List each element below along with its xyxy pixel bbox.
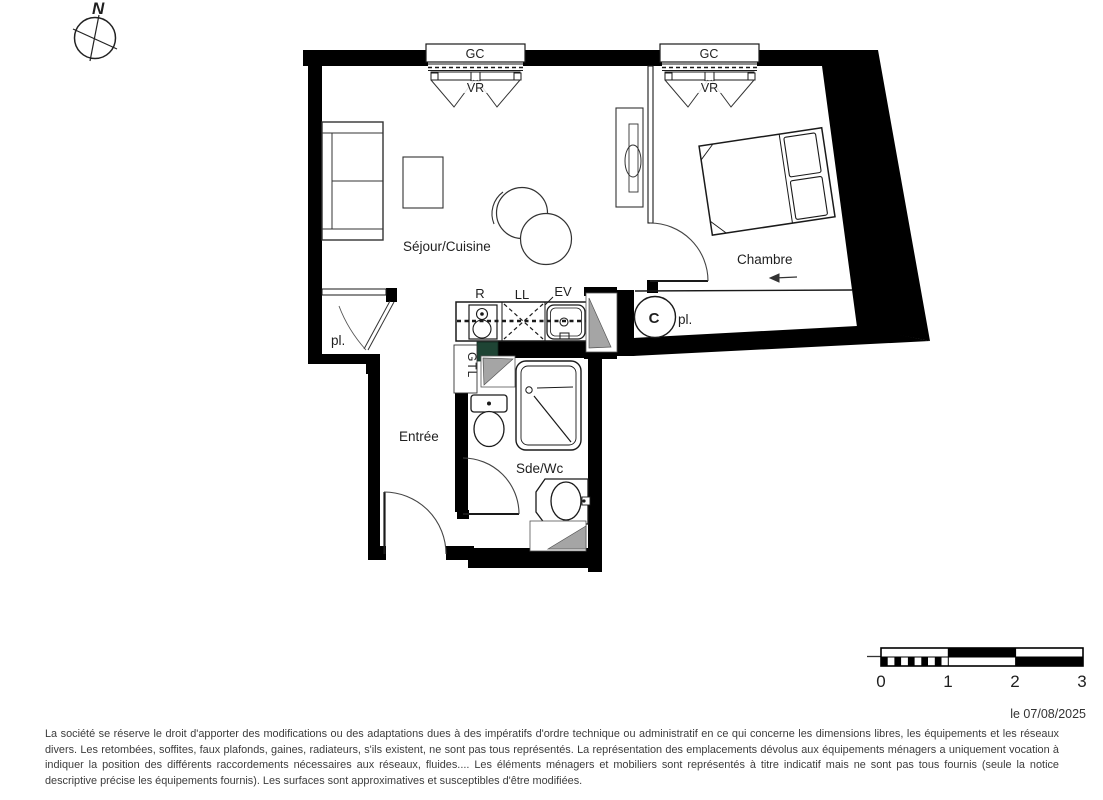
entrance-door (384, 492, 446, 554)
window-living: GC VR (426, 44, 525, 107)
sink-label: EV (554, 284, 572, 299)
scale-tick-0: 0 (876, 672, 885, 691)
compass-rose: N (73, 0, 117, 61)
living-closet-label: pl. (331, 333, 345, 348)
window-vr-label: VR (701, 81, 718, 95)
bedroom-closet-label: pl. (678, 312, 692, 327)
scale-bar: 0 1 2 3 (867, 648, 1087, 691)
fridge-label: R (475, 286, 484, 301)
water-heater: C (635, 297, 676, 338)
shower (516, 361, 581, 450)
washbasin (536, 479, 590, 524)
bed (699, 128, 835, 235)
scale-tick-3: 3 (1077, 672, 1086, 691)
washing-machine-label: LL (515, 287, 529, 302)
entry-direction-arrow (770, 274, 797, 282)
bedroom-partition (648, 66, 708, 281)
window-gc-label: GC (700, 47, 719, 61)
window-bedroom: GC VR (660, 44, 759, 107)
gtl-label: GTL (465, 352, 479, 378)
window-gc-label: GC (466, 47, 485, 61)
toilet (471, 395, 507, 447)
bathroom-vent-swing (530, 521, 586, 551)
bathroom-label: Sde/Wc (516, 461, 564, 476)
kitchen-counter (456, 297, 588, 341)
bathroom-door (463, 458, 519, 514)
living-room-label: Séjour/Cuisine (403, 239, 491, 254)
bedroom-desk (616, 108, 643, 207)
plan-date: le 07/08/2025 (1010, 707, 1086, 721)
scale-tick-2: 2 (1010, 672, 1019, 691)
bedroom-closet-front (635, 290, 852, 291)
dining-table-set (492, 188, 572, 265)
water-heater-label: C (649, 310, 660, 327)
scale-tick-1: 1 (943, 672, 952, 691)
window-vr-label: VR (467, 81, 484, 95)
wc-door-swing (481, 356, 515, 387)
compass-north-label: N (92, 0, 105, 18)
bedroom-label: Chambre (737, 252, 793, 267)
coffee-table (403, 157, 443, 208)
bedroom-door-arc (650, 223, 708, 281)
floor-plan-page: N (0, 0, 1103, 800)
legal-disclaimer: La société se réserve le droit d'apporte… (45, 727, 1059, 789)
bedroom-closet-door (586, 293, 617, 352)
floor-plan-drawing: N (0, 0, 1103, 800)
entry-label: Entrée (399, 429, 439, 444)
sofa (322, 122, 383, 240)
